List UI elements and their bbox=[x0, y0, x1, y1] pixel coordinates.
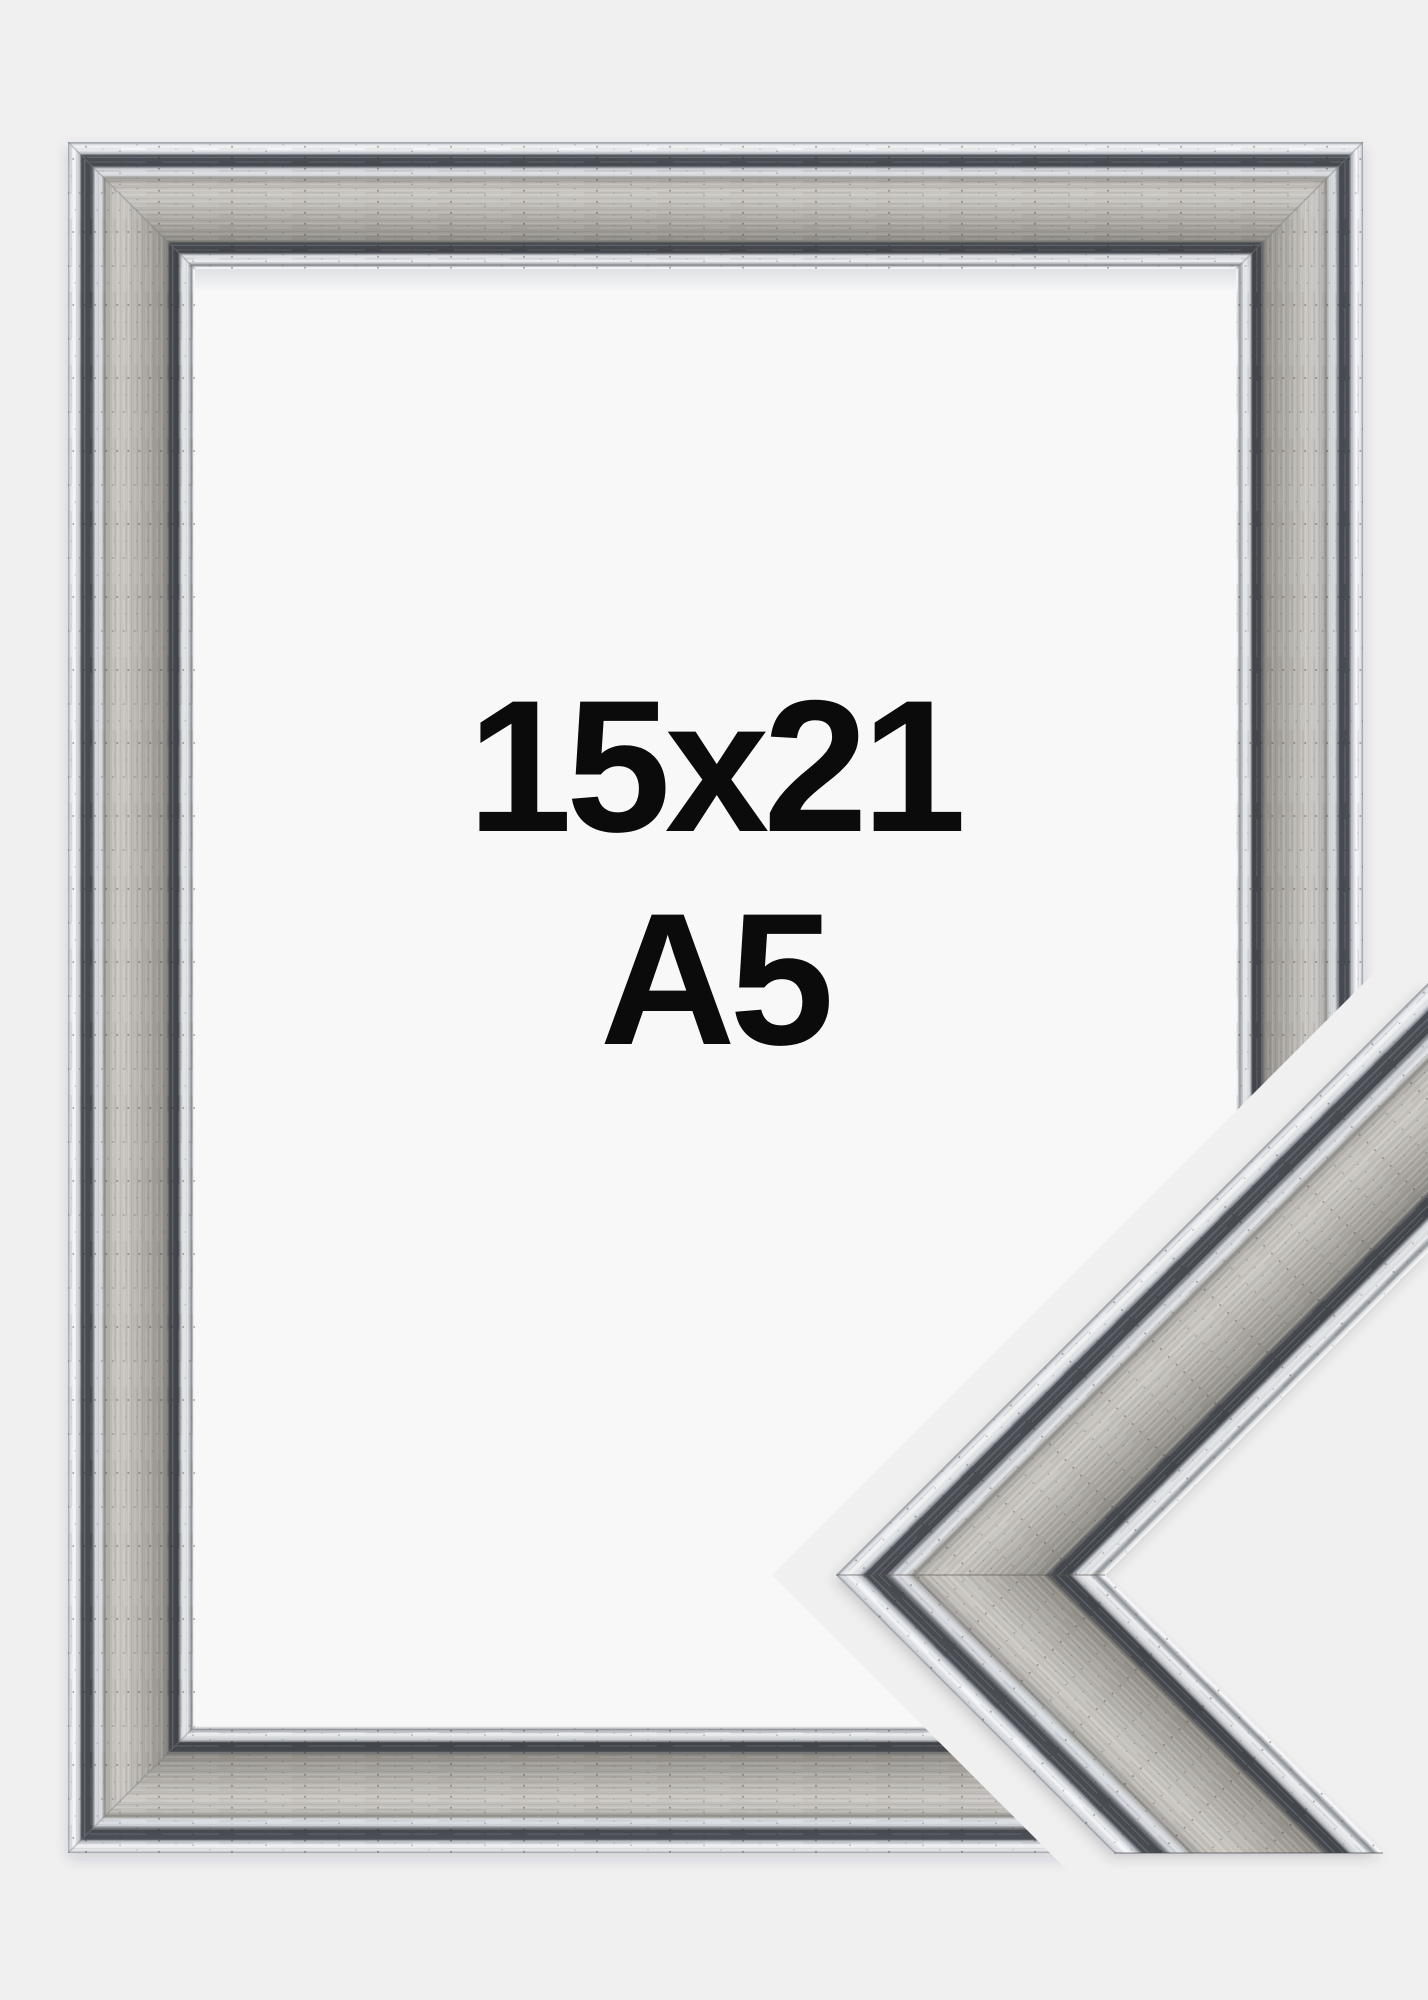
paper-size-text: A5 bbox=[0, 885, 1428, 1073]
mat-inner-shadow bbox=[195, 269, 1236, 293]
frame-top-grain-texture bbox=[68, 142, 1363, 269]
size-dimensions-text: 15x21 bbox=[0, 672, 1428, 860]
product-photo-frame-mockup: 15x21 A5 bbox=[0, 0, 1428, 2000]
